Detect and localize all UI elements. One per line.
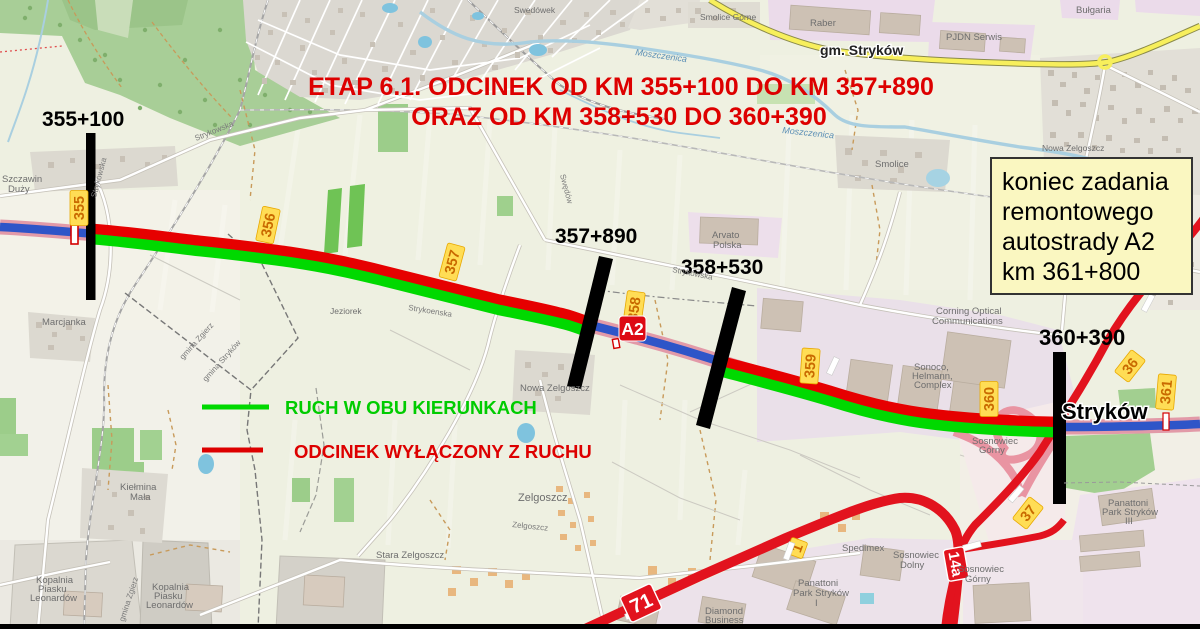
svg-text:Jeziorek: Jeziorek bbox=[330, 306, 362, 316]
svg-text:357+890: 357+890 bbox=[555, 225, 637, 248]
svg-text:A2: A2 bbox=[621, 319, 644, 339]
svg-text:Marcjanka: Marcjanka bbox=[42, 317, 87, 328]
svg-text:Raber: Raber bbox=[810, 18, 836, 29]
svg-text:359: 359 bbox=[802, 353, 820, 378]
svg-text:355: 355 bbox=[72, 196, 88, 220]
svg-text:360+390: 360+390 bbox=[1039, 325, 1125, 350]
svg-text:Smolice Górne: Smolice Górne bbox=[700, 12, 756, 22]
svg-text:remontowego: remontowego bbox=[1002, 198, 1153, 226]
svg-text:360: 360 bbox=[982, 387, 998, 411]
svg-text:Nowa Zelgoszcz: Nowa Zelgoszcz bbox=[1042, 143, 1104, 153]
svg-text:Leonardów: Leonardów bbox=[30, 593, 77, 604]
svg-text:gm. Stryków: gm. Stryków bbox=[820, 42, 903, 58]
svg-text:PJDN Serwis: PJDN Serwis bbox=[946, 32, 1002, 43]
svg-text:Duży: Duży bbox=[8, 184, 30, 195]
svg-text:361: 361 bbox=[1158, 379, 1176, 405]
svg-text:RUCH W OBU KIERUNKACH: RUCH W OBU KIERUNKACH bbox=[285, 397, 537, 418]
svg-text:Stryków: Stryków bbox=[1062, 399, 1148, 424]
svg-text:Smolice: Smolice bbox=[875, 159, 909, 170]
svg-text:Zelgoszcz: Zelgoszcz bbox=[518, 492, 568, 504]
svg-text:ODCINEK WYŁĄCZONY Z RUCHU: ODCINEK WYŁĄCZONY Z RUCHU bbox=[294, 441, 592, 462]
svg-text:Mała: Mała bbox=[130, 492, 151, 503]
svg-text:Górny: Górny bbox=[979, 445, 1005, 456]
svg-text:Polska: Polska bbox=[713, 240, 742, 251]
svg-text:ORAZ OD KM 358+530 DO 360+390: ORAZ OD KM 358+530 DO 360+390 bbox=[411, 103, 826, 131]
svg-text:Górny: Górny bbox=[965, 574, 991, 585]
svg-text:I: I bbox=[815, 598, 818, 609]
svg-text:Bułgaria: Bułgaria bbox=[1076, 5, 1112, 16]
svg-text:Complex: Complex bbox=[914, 380, 952, 391]
svg-text:Communications: Communications bbox=[932, 316, 1003, 327]
svg-text:autostrady A2: autostrady A2 bbox=[1002, 228, 1155, 256]
svg-text:III: III bbox=[1125, 516, 1133, 527]
svg-text:Dolny: Dolny bbox=[900, 560, 925, 571]
svg-text:Stara Zelgoszcz: Stara Zelgoszcz bbox=[376, 550, 444, 561]
svg-text:ETAP 6.1. ODCINEK OD KM 355+10: ETAP 6.1. ODCINEK OD KM 355+100 DO KM 35… bbox=[308, 73, 934, 101]
svg-text:Leonardów: Leonardów bbox=[146, 600, 193, 611]
svg-text:355+100: 355+100 bbox=[42, 108, 124, 131]
svg-text:km 361+800: km 361+800 bbox=[1002, 258, 1140, 286]
svg-text:Spedimex: Spedimex bbox=[842, 543, 884, 554]
svg-text:Nowa Zelgoszcz: Nowa Zelgoszcz bbox=[520, 383, 590, 394]
svg-text:koniec zadania: koniec zadania bbox=[1002, 168, 1169, 196]
svg-text:Park Stryków: Park Stryków bbox=[793, 588, 849, 599]
svg-text:Swedówek: Swedówek bbox=[514, 5, 556, 15]
